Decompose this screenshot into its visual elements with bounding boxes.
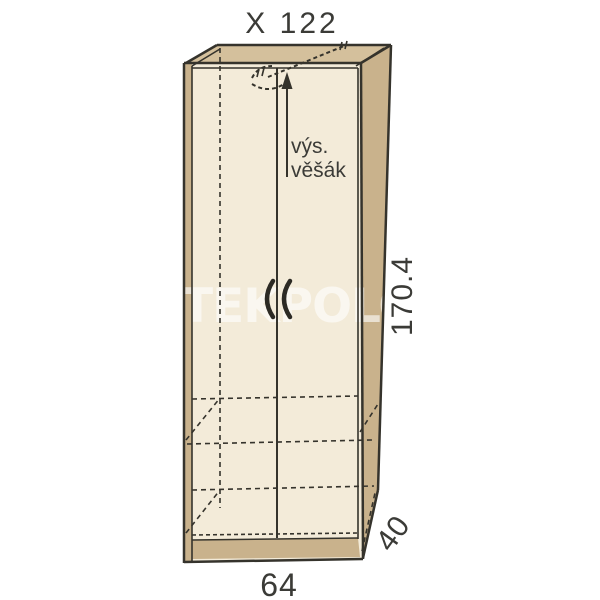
height-dimension: 170.4 xyxy=(386,256,419,336)
plinth xyxy=(192,538,360,559)
depth-dimension: 40 xyxy=(370,509,417,557)
wardrobe-technical-drawing: YTEKPOLOD xyxy=(0,0,600,600)
width-dimension: 64 xyxy=(260,567,298,600)
hanger-label-line1: výs. xyxy=(291,135,328,158)
top-face xyxy=(186,45,391,63)
model-title: X 122 xyxy=(245,7,338,40)
drawing-canvas: YTEKPOLOD xyxy=(0,0,600,600)
hanger-label-line2: věšák xyxy=(291,159,346,182)
